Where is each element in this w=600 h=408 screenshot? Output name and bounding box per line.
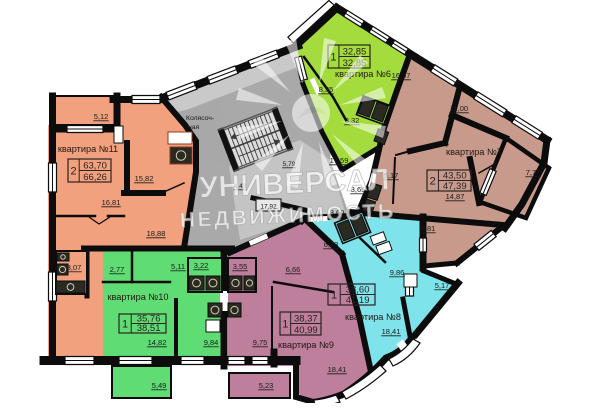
svg-text:3,22: 3,22: [194, 261, 209, 270]
svg-text:18,41: 18,41: [328, 365, 347, 374]
svg-text:17,59: 17,59: [330, 156, 349, 165]
svg-text:квартира №11: квартира №11: [58, 144, 118, 154]
svg-text:Колясоч-: Колясоч-: [186, 115, 214, 122]
svg-text:5,49: 5,49: [152, 381, 167, 390]
svg-text:63,70: 63,70: [83, 161, 107, 172]
svg-text:квартира №8: квартира №8: [345, 312, 401, 322]
svg-text:ная: ная: [188, 124, 200, 131]
svg-text:5,23: 5,23: [259, 381, 274, 390]
svg-text:9,75: 9,75: [253, 338, 268, 347]
svg-text:3,07: 3,07: [67, 263, 82, 272]
svg-text:1: 1: [330, 52, 336, 64]
svg-text:квартира №10: квартира №10: [107, 292, 168, 302]
svg-text:38,37: 38,37: [294, 314, 318, 325]
svg-text:18,41: 18,41: [382, 327, 401, 336]
svg-text:5,12: 5,12: [94, 112, 109, 121]
svg-text:14,82: 14,82: [148, 338, 167, 347]
svg-text:6,73: 6,73: [324, 240, 339, 249]
svg-text:8,81: 8,81: [421, 224, 436, 233]
svg-text:5,17: 5,17: [435, 281, 450, 290]
svg-text:квартира №9: квартира №9: [278, 340, 334, 350]
svg-text:41,19: 41,19: [346, 295, 370, 306]
svg-text:1: 1: [331, 290, 337, 302]
svg-text:16,07: 16,07: [392, 71, 411, 80]
svg-text:47,39: 47,39: [443, 181, 467, 192]
svg-text:9,86: 9,86: [390, 268, 405, 277]
svg-text:5,11: 5,11: [171, 262, 185, 271]
svg-text:14,87: 14,87: [446, 192, 465, 201]
svg-text:7,77: 7,77: [526, 168, 541, 177]
svg-text:11,00: 11,00: [450, 104, 468, 113]
svg-text:3,55: 3,55: [233, 262, 248, 271]
svg-text:66,26: 66,26: [83, 172, 107, 183]
svg-text:1: 1: [122, 319, 128, 331]
svg-text:18,88: 18,88: [147, 229, 166, 238]
svg-text:2: 2: [430, 176, 436, 188]
svg-text:9,84: 9,84: [204, 338, 219, 347]
svg-text:40,99: 40,99: [294, 325, 318, 336]
svg-text:8,35: 8,35: [319, 85, 334, 94]
svg-text:38,51: 38,51: [137, 323, 161, 334]
svg-text:16,81: 16,81: [102, 198, 121, 207]
svg-text:32,85: 32,85: [343, 47, 367, 58]
svg-text:2,77: 2,77: [110, 265, 125, 274]
svg-text:15,82: 15,82: [135, 174, 154, 183]
svg-text:2: 2: [71, 166, 77, 178]
svg-text:квартира №7: квартира №7: [446, 147, 502, 157]
svg-text:1: 1: [282, 319, 288, 331]
svg-text:6,66: 6,66: [286, 265, 301, 274]
